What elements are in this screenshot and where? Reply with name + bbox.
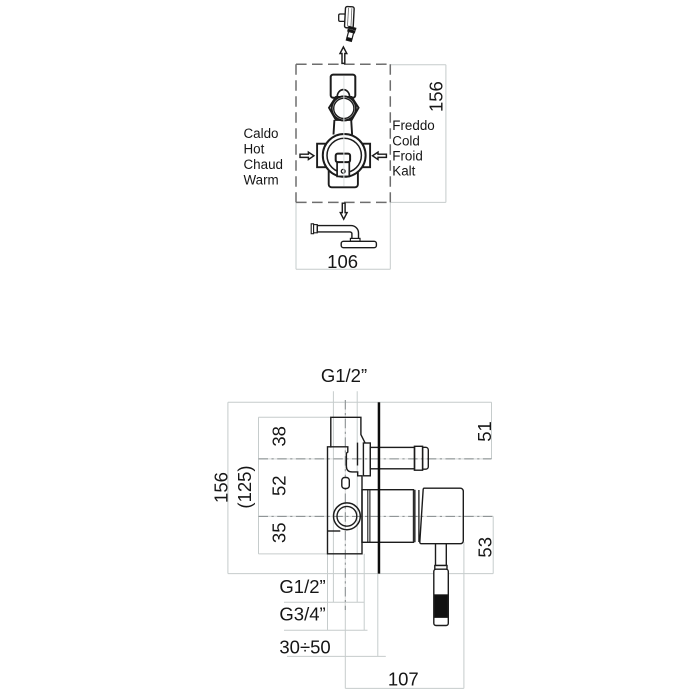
svg-text:G1/2”: G1/2”: [279, 576, 325, 597]
svg-text:Hot: Hot: [244, 142, 265, 157]
svg-text:51: 51: [474, 421, 495, 442]
svg-text:Froid: Froid: [392, 149, 423, 164]
svg-text:Caldo: Caldo: [244, 126, 279, 141]
svg-text:52: 52: [268, 475, 289, 496]
svg-text:G1/2”: G1/2”: [321, 365, 367, 386]
svg-text:156: 156: [210, 472, 231, 503]
svg-text:30÷50: 30÷50: [279, 637, 330, 658]
svg-text:53: 53: [474, 537, 495, 558]
svg-text:Warm: Warm: [244, 173, 279, 188]
svg-text:Kalt: Kalt: [392, 164, 415, 179]
svg-text:156: 156: [425, 81, 446, 112]
svg-text:35: 35: [268, 523, 289, 544]
svg-text:Chaud: Chaud: [244, 157, 283, 172]
svg-text:(125): (125): [234, 465, 255, 508]
svg-text:38: 38: [268, 426, 289, 447]
svg-text:Freddo: Freddo: [392, 118, 434, 133]
svg-text:Cold: Cold: [392, 133, 420, 148]
svg-text:G3/4”: G3/4”: [279, 603, 325, 624]
svg-text:107: 107: [388, 669, 419, 690]
svg-text:106: 106: [327, 251, 358, 272]
